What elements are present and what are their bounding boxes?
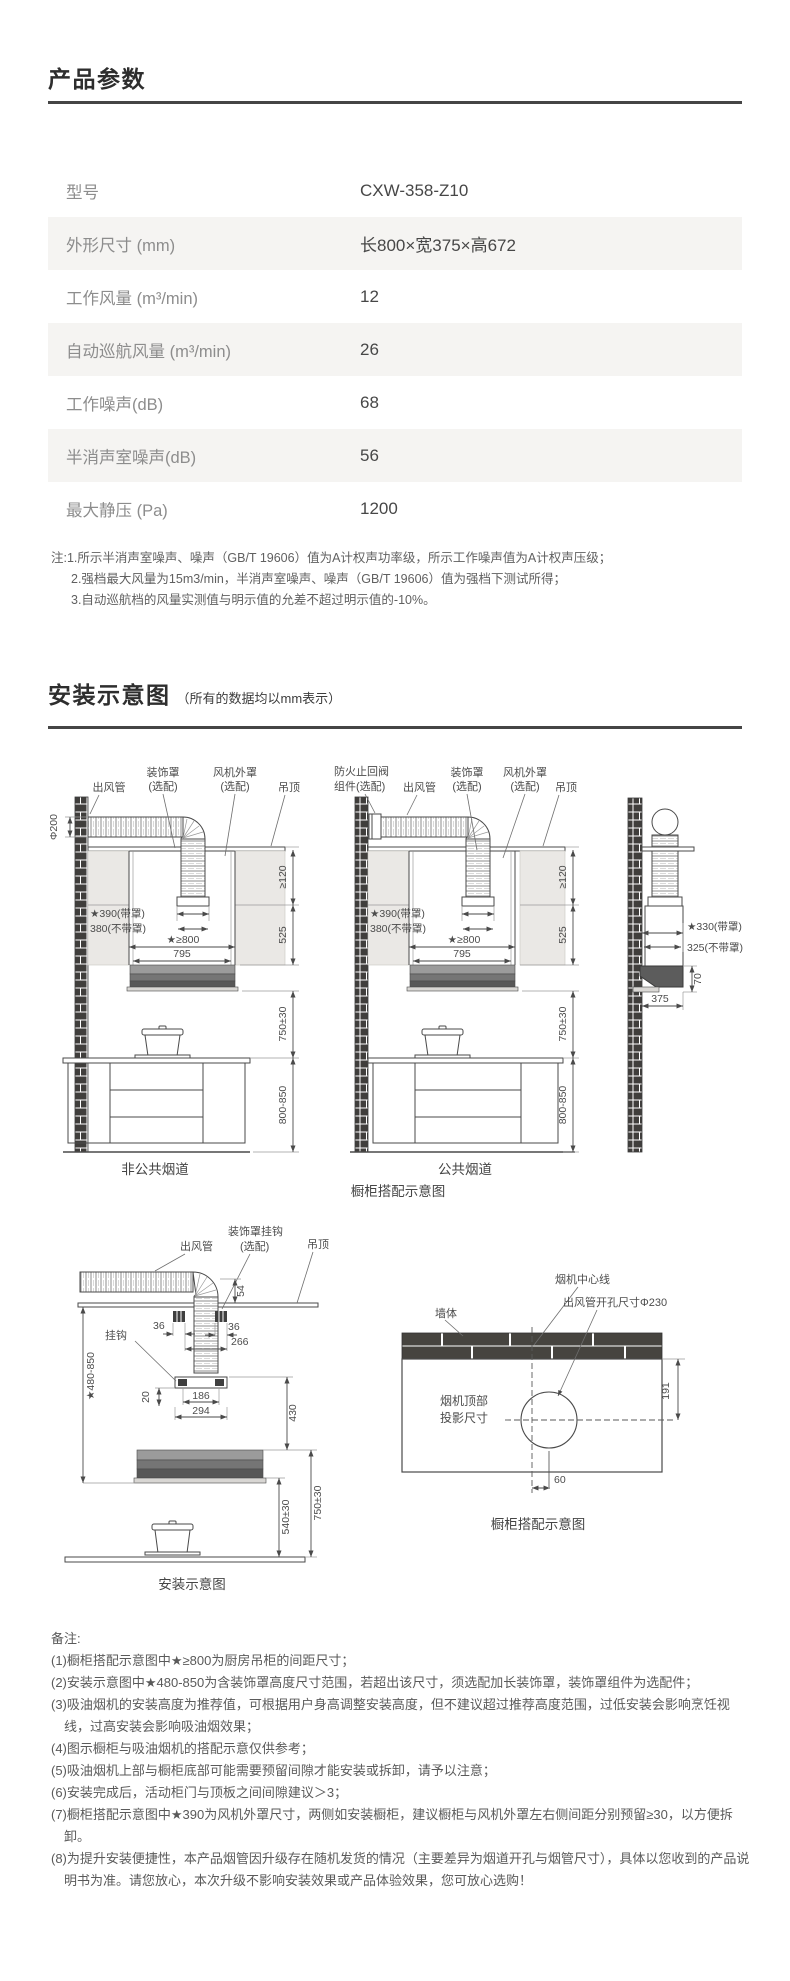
label-cover-hook-optional: (选配) [240, 1240, 269, 1253]
hood-side [640, 966, 683, 987]
dim-294: 294 [192, 1405, 210, 1417]
pot-lid [152, 1524, 193, 1530]
remark-item: (8)为提升安装便捷性，本产品烟管因升级存在随机发货的情况（主要差异为烟道开孔与… [51, 1848, 753, 1892]
remark-item: (2)安装示意图中★480-850为含装饰罩高度尺寸范围，若超出该尺寸，须选配加… [51, 1672, 753, 1694]
dim-380: 380(不带罩) [90, 923, 146, 935]
spec-value: 长800×宽375×高672 [360, 231, 516, 256]
spec-label: 自动巡航风量 (m³/min) [48, 338, 360, 362]
range-hood [130, 965, 235, 974]
brick-flue [75, 797, 88, 1152]
pot-lid [142, 1029, 183, 1035]
label-fan-cover: 风机外罩 [213, 765, 257, 779]
dim-120: ≥120 [557, 865, 569, 888]
dim-325: 325(不带罩) [687, 942, 743, 954]
remark-item: (3)吸油烟机的安装高度为推荐值，可根据用户身高调整安装高度，但不建议超过推荐高… [51, 1694, 753, 1738]
remark-item: (5)吸油烟机上部与橱柜底部可能需要预留间隙才能安装或拆卸，请予以注意； [51, 1760, 753, 1782]
dim-795: 795 [453, 948, 471, 960]
spec-value: 68 [360, 393, 379, 413]
remark-item: (6)安装完成后，活动柜门与顶板之间间隙建议＞3； [51, 1782, 753, 1804]
label-hood-center-line: 烟机中心线 [555, 1272, 610, 1286]
caption-shared-flue: 公共烟道 [438, 1162, 492, 1177]
dim-380: 380(不带罩) [370, 923, 426, 935]
dim-750: 750±30 [312, 1485, 324, 1520]
label-ceiling: 吊顶 [278, 781, 300, 794]
label-wall: 墙体 [435, 1306, 457, 1320]
dim-800-850: 800-850 [557, 1086, 569, 1125]
base-cabinet [68, 1063, 245, 1143]
dim-390: ★390(带罩) [90, 908, 145, 920]
dim-20: 20 [140, 1391, 152, 1403]
note-line: 注:1.所示半消声室噪声、噪声（GB/T 19606）值为A计权声功率级，所示工… [51, 548, 751, 569]
dim-266: 266 [231, 1336, 249, 1348]
dim-795: 795 [173, 948, 191, 960]
spec-label: 型号 [48, 179, 360, 203]
label-cover-optional: (选配) [452, 780, 481, 793]
fan-cover-side [645, 906, 683, 966]
spec-label: 最大静压 (Pa) [48, 497, 360, 521]
stove [145, 1552, 200, 1555]
dim-525: 525 [277, 926, 289, 944]
install-subtitle: （所有的数据均以mm表示） [177, 691, 342, 706]
ceiling-bracket [642, 847, 694, 851]
dim-750: 750±30 [557, 1006, 569, 1041]
label-ceiling: 吊顶 [555, 781, 577, 794]
dim-70: 70 [692, 973, 704, 985]
label-fan-optional: (选配) [220, 780, 249, 793]
brick-flue [355, 797, 368, 1152]
diagram-shared-flue: 防火止回阀 组件(选配) 出风管 装饰罩 (选配) 风机外罩 (选配) 吊顶 ★… [334, 764, 579, 1177]
horizontal-duct [80, 1272, 193, 1292]
label-duct: 出风管 [93, 780, 126, 794]
spec-value: 1200 [360, 499, 398, 519]
vertical-duct [652, 835, 678, 897]
spec-value: 26 [360, 340, 379, 360]
dim-phi200: Φ200 [48, 814, 60, 840]
table-row: 半消声室噪声(dB) 56 [48, 429, 742, 482]
remark-item: (7)橱柜搭配示意图中★390为风机外罩尺寸，两侧如安装橱柜，建议橱柜与风机外罩… [51, 1804, 753, 1848]
dim-480-850: ★480-850 [85, 1352, 97, 1400]
range-hood [410, 965, 515, 974]
title-rule [48, 726, 742, 729]
pot-lid [422, 1029, 463, 1035]
table-row: 自动巡航风量 (m³/min) 26 [48, 323, 742, 376]
label-hook: 挂钩 [105, 1328, 127, 1342]
table-row: 最大静压 (Pa) 1200 [48, 482, 742, 535]
label-duct: 出风管 [403, 780, 436, 794]
remarks-title: 备注: [51, 1628, 753, 1650]
dim-36-left: 36 [153, 1320, 165, 1332]
caption-non-shared-flue: 非公共烟道 [121, 1162, 189, 1177]
dim-525: 525 [557, 926, 569, 944]
table-row: 型号 CXW-358-Z10 [48, 164, 742, 217]
spec-value: CXW-358-Z10 [360, 181, 468, 201]
fire-check-valve [369, 814, 381, 839]
label-fan-optional: (选配) [510, 780, 539, 793]
drawing-shapes [350, 797, 575, 1152]
dim-191: 191 [660, 1382, 672, 1400]
duct-circle [652, 809, 678, 835]
note-line: 3.自动巡航档的风量实测值与明示值的允差不超过明示值的-10%。 [51, 590, 751, 611]
duct-collar [462, 897, 494, 906]
cover-hook-left [173, 1311, 185, 1322]
vertical-duct [181, 839, 205, 897]
label-duct-hole-size: 出风管开孔尺寸Φ230 [563, 1295, 667, 1309]
countertop [63, 1058, 250, 1063]
label-cover-hook: 装饰罩挂钩 [228, 1224, 283, 1238]
dim-750: 750±30 [277, 1006, 289, 1041]
table-row: 工作风量 (m³/min) 12 [48, 270, 742, 323]
dim-gap800: ★≥800 [167, 934, 200, 946]
caption-cabinet-match-bottom: 橱柜搭配示意图 [491, 1516, 586, 1532]
base-cabinet [373, 1063, 558, 1143]
spec-value: 12 [360, 287, 379, 307]
label-fan-cover: 风机外罩 [503, 765, 547, 779]
dim-gap800: ★≥800 [448, 934, 481, 946]
caption-cabinet-match-top: 橱柜搭配示意图 [351, 1183, 446, 1199]
params-title: 产品参数 [48, 66, 146, 92]
pot-body [425, 1035, 460, 1056]
label-cover: 装饰罩 [147, 765, 180, 779]
caption-install-detail: 安装示意图 [158, 1576, 226, 1592]
spec-label: 工作噪声(dB) [48, 391, 360, 415]
table-row: 外形尺寸 (mm) 长800×宽375×高672 [48, 217, 742, 270]
label-cover-optional: (选配) [148, 780, 177, 793]
label-ceiling: 吊顶 [307, 1238, 329, 1251]
drawing-shapes [628, 798, 694, 1152]
spec-value: 56 [360, 446, 379, 466]
label-cover: 装饰罩 [451, 765, 484, 779]
dim-375: 375 [651, 993, 669, 1005]
hook-left [178, 1379, 187, 1386]
hook-right [215, 1379, 224, 1386]
table-row: 工作噪声(dB) 68 [48, 376, 742, 429]
label-duct: 出风管 [180, 1239, 213, 1253]
drawing-shapes [63, 797, 285, 1152]
remark-item: (4)图示橱柜与吸油烟机的搭配示意仅供参考； [51, 1738, 753, 1760]
cover-hook-right [215, 1311, 227, 1322]
dim-330: ★330(带罩) [687, 921, 742, 933]
spec-label: 工作风量 (m³/min) [48, 285, 360, 309]
label-projection-2: 投影尺寸 [440, 1410, 488, 1425]
cabinet-match-diagrams: 出风管 装饰罩 (选配) 风机外罩 (选配) 吊顶 Φ200 ★390(带罩) … [35, 740, 755, 1210]
dim-186: 186 [192, 1390, 210, 1402]
dim-430: 430 [287, 1404, 299, 1422]
section-title-params: 产品参数 [48, 60, 146, 94]
dim-390: ★390(带罩) [370, 908, 425, 920]
note-line: 2.强档最大风量为15m3/min，半消声室噪声、噪声（GB/T 19606）值… [51, 569, 751, 590]
remarks: 备注: (1)橱柜搭配示意图中★≥800为厨房吊柜的间距尺寸； (2)安装示意图… [51, 1628, 753, 1892]
label-fire-valve-2: 组件(选配) [334, 779, 385, 793]
diagram-non-shared-flue: 出风管 装饰罩 (选配) 风机外罩 (选配) 吊顶 Φ200 ★390(带罩) … [48, 765, 300, 1177]
install-title: 安装示意图 [48, 682, 171, 708]
duct-collar [648, 897, 682, 906]
spec-table: 型号 CXW-358-Z10 外形尺寸 (mm) 长800×宽375×高672 … [48, 164, 742, 535]
diagram-install-detail: 出风管 装饰罩挂钩 (选配) 吊顶 挂钩 54 36 36 266 ★480-8… [65, 1224, 329, 1592]
dim-36-right: 36 [228, 1321, 240, 1333]
label-fire-valve-1: 防火止回阀 [334, 764, 389, 778]
label-projection-1: 烟机顶部 [440, 1393, 488, 1408]
title-rule [48, 101, 742, 104]
horizontal-duct [381, 817, 468, 837]
pot-body [145, 1035, 180, 1056]
dim-120: ≥120 [277, 865, 289, 888]
section-title-install: 安装示意图（所有的数据均以mm表示） [48, 676, 341, 710]
param-notes: 注:1.所示半消声室噪声、噪声（GB/T 19606）值为A计权声功率级，所示工… [51, 548, 751, 611]
installation-diagrams: 出风管 装饰罩挂钩 (选配) 吊顶 挂钩 54 36 36 266 ★480-8… [35, 1215, 755, 1605]
remark-item: (1)橱柜搭配示意图中★≥800为厨房吊柜的间距尺寸； [51, 1650, 753, 1672]
dim-800-850: 800-850 [277, 1086, 289, 1125]
duct-collar [177, 897, 209, 906]
countertop [368, 1058, 563, 1063]
spec-label: 外形尺寸 (mm) [48, 232, 360, 256]
dim-60: 60 [554, 1474, 566, 1486]
range-hood [137, 1450, 263, 1460]
pot-body [155, 1530, 190, 1553]
diagram-top-projection: 烟机中心线 出风管开孔尺寸Φ230 墙体 烟机顶部 投影尺寸 191 60 橱柜… [402, 1272, 685, 1532]
diagram-side-view: ★330(带罩) 325(不带罩) 70 375 [628, 798, 743, 1152]
product-spec-page: 产品参数 型号 CXW-358-Z10 外形尺寸 (mm) 长800×宽375×… [0, 0, 790, 1981]
dim-54: 54 [235, 1285, 247, 1297]
countertop [65, 1557, 305, 1562]
dim-540: 540±30 [280, 1499, 292, 1534]
spec-label: 半消声室噪声(dB) [48, 444, 360, 468]
drawing-shapes [402, 1327, 675, 1493]
vertical-duct [466, 839, 490, 897]
